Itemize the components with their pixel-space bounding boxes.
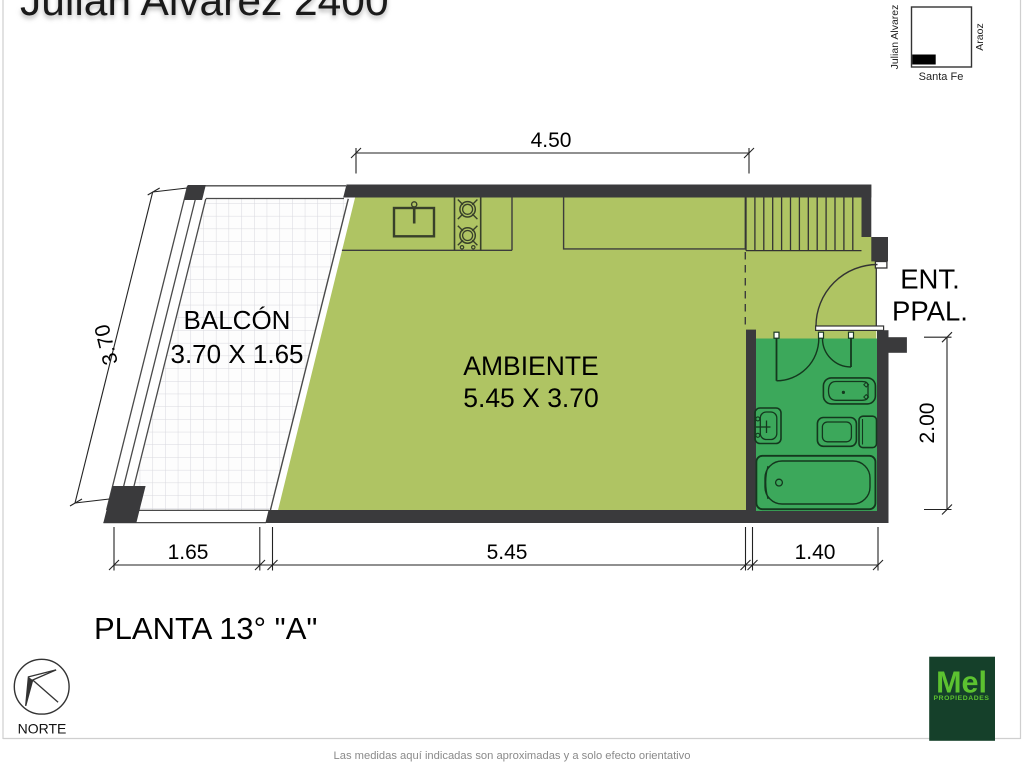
svg-text:1.40: 1.40 bbox=[795, 541, 836, 564]
svg-text:Las medidas aquí indicadas son: Las medidas aquí indicadas son aproximad… bbox=[334, 750, 691, 762]
svg-text:ENT.: ENT. bbox=[900, 264, 960, 295]
svg-text:1.65: 1.65 bbox=[168, 541, 209, 564]
svg-text:AMBIENTE: AMBIENTE bbox=[463, 351, 598, 381]
svg-text:Santa Fe: Santa Fe bbox=[919, 71, 964, 83]
svg-text:PPAL.: PPAL. bbox=[892, 296, 968, 327]
svg-text:5.45: 5.45 bbox=[487, 541, 528, 564]
svg-text:Julian Alvarez: Julian Alvarez bbox=[889, 5, 901, 70]
svg-text:Julian Alvarez 2400: Julian Alvarez 2400 bbox=[20, 0, 389, 25]
svg-text:4.50: 4.50 bbox=[531, 129, 572, 152]
svg-text:PLANTA 13° "A": PLANTA 13° "A" bbox=[94, 611, 317, 646]
svg-text:PROPIEDADES: PROPIEDADES bbox=[933, 695, 989, 702]
svg-text:3.70 X 1.65: 3.70 X 1.65 bbox=[171, 339, 304, 369]
svg-text:2.00: 2.00 bbox=[916, 403, 939, 444]
svg-text:3.70: 3.70 bbox=[91, 322, 123, 367]
svg-text:BALCÓN: BALCÓN bbox=[184, 305, 291, 335]
svg-text:Araoz: Araoz bbox=[974, 23, 986, 50]
svg-text:NORTE: NORTE bbox=[18, 721, 67, 737]
svg-text:5.45 X 3.70: 5.45 X 3.70 bbox=[463, 383, 599, 413]
